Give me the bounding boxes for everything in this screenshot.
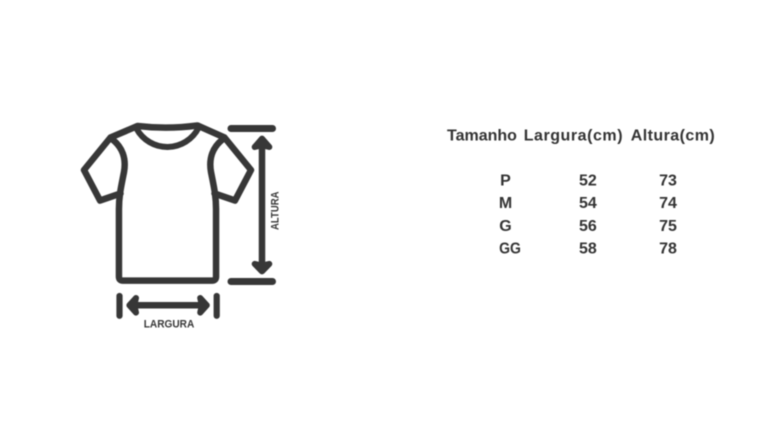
svg-text:Largura(cm): Largura(cm) [524,127,623,144]
svg-text:56: 56 [579,218,597,235]
svg-text:ALTURA: ALTURA [270,191,282,230]
svg-text:M: M [499,195,512,212]
svg-text:Altura(cm): Altura(cm) [631,127,716,144]
svg-text:78: 78 [659,241,677,258]
svg-text:52: 52 [579,172,597,189]
svg-text:73: 73 [659,172,677,189]
svg-text:P: P [500,172,511,189]
svg-text:Tamanho: Tamanho [447,127,517,144]
svg-text:75: 75 [659,218,677,235]
svg-text:74: 74 [659,195,677,212]
svg-text:GG: GG [499,241,521,258]
svg-text:54: 54 [579,195,597,212]
svg-text:G: G [499,218,511,235]
svg-text:58: 58 [579,241,597,258]
svg-text:LARGURA: LARGURA [144,319,195,331]
